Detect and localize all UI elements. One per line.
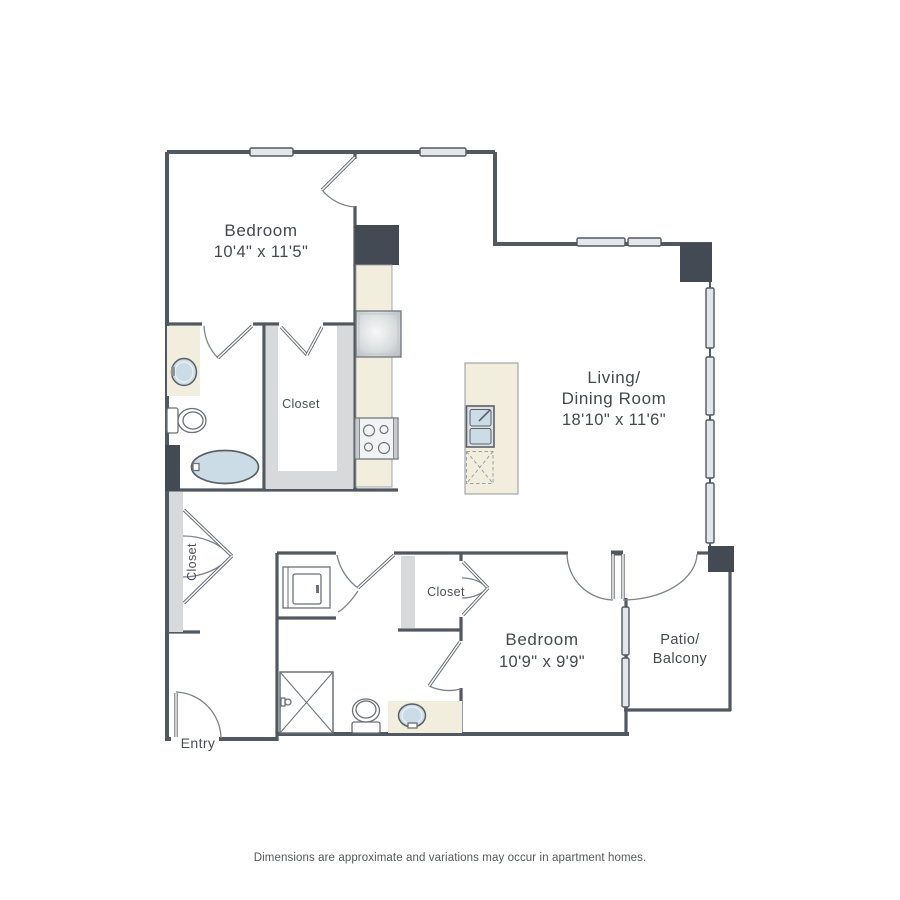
living-room-label-line2: Dining Room [562,389,667,408]
washer-dryer-icon [283,567,330,608]
structural-column [355,225,399,265]
disclaimer-text: Dimensions are approximate and variation… [254,852,647,864]
living-room-dimensions: 18'10" x 11'6" [562,411,666,429]
island-sink-icon [467,406,495,447]
window [622,607,629,655]
window [706,357,714,415]
labels: Bedroom 10'4" x 11'5" Living/ Dining Roo… [181,221,708,864]
kitchen-island [465,363,518,494]
floor-plan: Bedroom 10'4" x 11'5" Living/ Dining Roo… [0,0,900,900]
refrigerator-icon [356,311,401,357]
vanity-sink-icon [388,701,462,733]
patio-label-line1: Patio/ [660,632,700,648]
floor-plan-page: Bedroom 10'4" x 11'5" Living/ Dining Roo… [0,0,900,900]
window [577,238,625,246]
window [628,238,661,246]
window [420,148,466,156]
vanity-sink-icon [167,326,200,396]
bedroom2-closet-label: Closet [427,585,465,599]
window [250,148,293,156]
window [622,658,629,707]
window [706,288,714,348]
bedroom1-closet-label: Closet [282,397,320,411]
shower-icon [280,672,333,733]
structural-column [708,546,734,572]
entry-label: Entry [181,735,216,751]
bathtub-icon [192,451,259,484]
toilet-icon [352,699,380,733]
structural-column [165,445,180,491]
entry-closet-label: Closet [185,543,199,581]
window [706,483,714,543]
structural-column [680,243,712,282]
patio-label-line2: Balcony [653,651,708,667]
living-room-label-line1: Living/ [587,368,640,387]
toilet-icon [167,408,206,433]
bedroom2-label: Bedroom [505,630,578,649]
bedroom1-label: Bedroom [224,221,297,240]
bedroom2-dimensions: 10'9" x 9'9" [499,653,585,671]
bedroom1-dimensions: 10'4" x 11'5" [214,243,308,261]
window [706,420,714,478]
stove-icon [355,418,398,459]
